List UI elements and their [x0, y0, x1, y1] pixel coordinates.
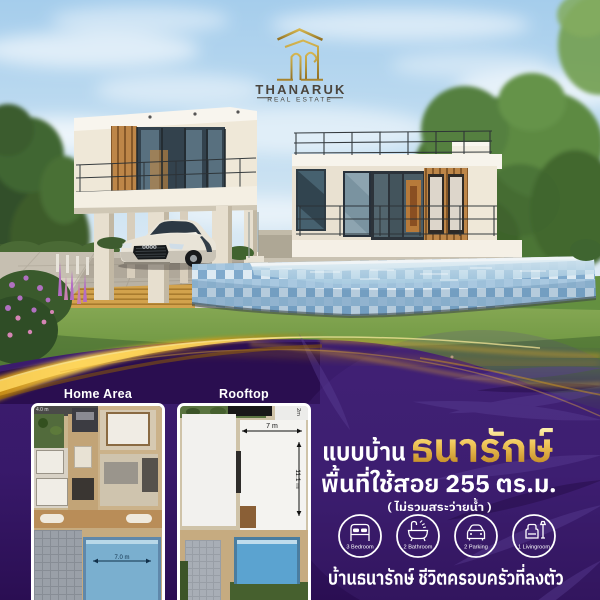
svg-text:7.0 m: 7.0 m [114, 555, 129, 561]
svg-text:2 Parking: 2 Parking [464, 545, 488, 551]
svg-text:THANARUK: THANARUK [255, 82, 346, 97]
svg-text:REAL ESTATE: REAL ESTATE [267, 97, 332, 104]
svg-text:2 Bathroom: 2 Bathroom [404, 545, 433, 551]
svg-text:7 m: 7 m [266, 423, 278, 430]
svg-text:11.1 m: 11.1 m [294, 469, 301, 488]
svg-text:3 Bedroom: 3 Bedroom [346, 545, 374, 551]
svg-text:1 Livingroom: 1 Livingroom [518, 545, 550, 551]
